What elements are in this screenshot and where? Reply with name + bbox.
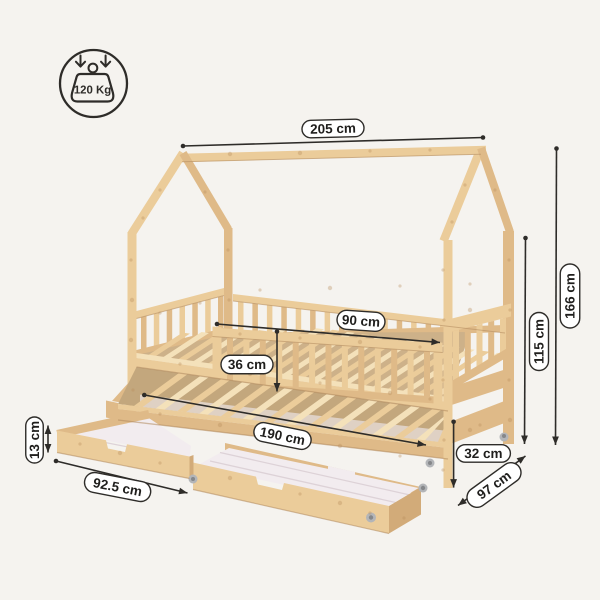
svg-text:36 cm: 36 cm: [228, 357, 266, 372]
svg-text:90 cm: 90 cm: [341, 312, 380, 330]
svg-text:205 cm: 205 cm: [310, 121, 356, 137]
svg-text:115 cm: 115 cm: [532, 319, 547, 364]
svg-text:120 Kg: 120 Kg: [74, 84, 111, 96]
svg-text:32 cm: 32 cm: [464, 446, 502, 461]
svg-text:13 cm: 13 cm: [27, 421, 42, 459]
svg-text:166 cm: 166 cm: [563, 273, 578, 319]
